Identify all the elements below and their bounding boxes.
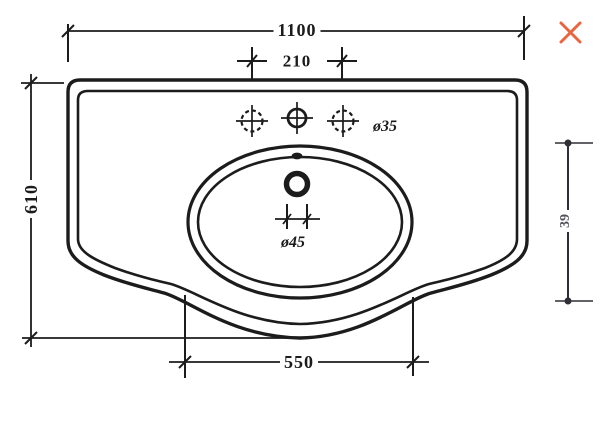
drawing-viewer: 1100 210 610 550 39 ø35 ø45 bbox=[0, 0, 600, 421]
close-icon[interactable] bbox=[555, 17, 585, 47]
close-icon-glyph bbox=[555, 17, 585, 47]
label-tap-hole-diameter: ø35 bbox=[369, 119, 401, 135]
drain-hole bbox=[287, 174, 308, 195]
overflow-slot bbox=[292, 153, 303, 160]
dimension-drain-marker bbox=[275, 204, 320, 229]
label-drain-diameter: ø45 bbox=[277, 235, 309, 251]
tap-holes bbox=[236, 102, 359, 137]
label-overall-width: 1100 bbox=[273, 21, 320, 39]
label-front-width: 550 bbox=[280, 353, 318, 371]
label-tap-spacing: 210 bbox=[279, 53, 316, 70]
label-side-height: 39 bbox=[559, 210, 573, 232]
label-overall-depth: 610 bbox=[22, 180, 40, 218]
dimension-overall-depth bbox=[21, 74, 296, 347]
basin-oval bbox=[188, 146, 412, 298]
